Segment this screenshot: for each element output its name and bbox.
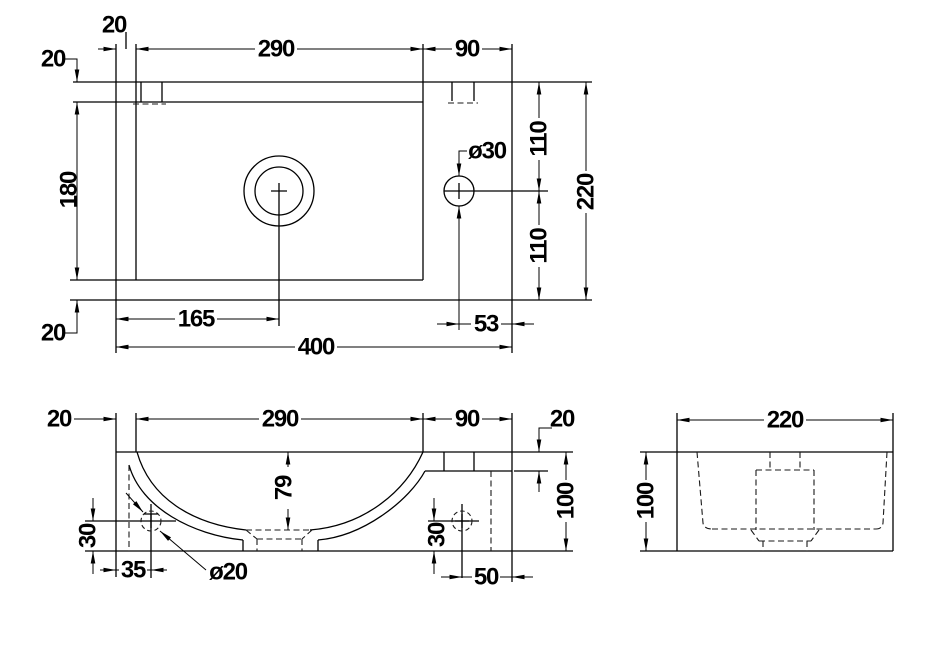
dim-plan-left-rim: 20 bbox=[102, 12, 127, 39]
dim-front-right-hole-height: 30 bbox=[424, 522, 451, 547]
dim-plan-bowl-width: 290 bbox=[258, 36, 295, 63]
dim-front-deck-thickness: 20 bbox=[550, 406, 575, 433]
dim-plan-tap-hole-diameter: ø30 bbox=[468, 138, 507, 165]
dim-plan-top-rim: 20 bbox=[41, 46, 66, 73]
dim-plan-tap-to-back: 110 bbox=[526, 121, 553, 157]
dim-side-height: 100 bbox=[633, 482, 660, 519]
dim-front-left-hole-offset: 35 bbox=[121, 557, 146, 584]
side-outline bbox=[640, 413, 893, 551]
dim-front-hole-diameter: ø20 bbox=[209, 559, 248, 586]
dim-front-deck-width: 90 bbox=[455, 406, 480, 433]
dim-plan-bowl-depth: 180 bbox=[56, 171, 83, 208]
dim-front-right-hole-offset: 50 bbox=[474, 564, 499, 591]
front-view: 20 290 90 20 100 79 30 35 ø20 30 50 bbox=[47, 406, 580, 591]
dim-plan-tap-to-front: 110 bbox=[526, 228, 553, 264]
dim-side-width: 220 bbox=[767, 407, 804, 434]
side-hidden-interior bbox=[697, 452, 887, 551]
dim-plan-bottom-rim: 20 bbox=[41, 320, 66, 347]
dim-front-left-rim: 20 bbox=[47, 406, 72, 433]
dim-front-left-hole-height: 30 bbox=[75, 523, 102, 548]
front-drain-hidden bbox=[246, 530, 312, 551]
side-dimension-lines bbox=[646, 420, 893, 551]
dim-plan-deck-width: 90 bbox=[455, 36, 480, 63]
dim-plan-overall-width: 400 bbox=[298, 334, 335, 361]
plan-outline bbox=[70, 32, 592, 353]
dim-plan-overall-depth: 220 bbox=[573, 173, 600, 210]
dim-plan-tap-offset: 53 bbox=[474, 311, 499, 338]
dim-front-bowl-depth: 79 bbox=[271, 475, 298, 500]
plan-view: 20 290 90 20 180 20 165 53 400 110 110 2… bbox=[41, 12, 600, 361]
front-outline bbox=[85, 413, 573, 582]
basin-dimension-drawing: 20 290 90 20 180 20 165 53 400 110 110 2… bbox=[0, 0, 927, 656]
dim-front-height: 100 bbox=[553, 482, 580, 519]
technical-drawing-canvas: 20 290 90 20 180 20 165 53 400 110 110 2… bbox=[0, 0, 927, 656]
side-view: 220 100 bbox=[633, 407, 894, 552]
dim-front-bowl-width: 290 bbox=[262, 406, 299, 433]
plan-slot-hidden-lines bbox=[133, 103, 478, 104]
dim-plan-drain-offset: 165 bbox=[178, 306, 215, 333]
